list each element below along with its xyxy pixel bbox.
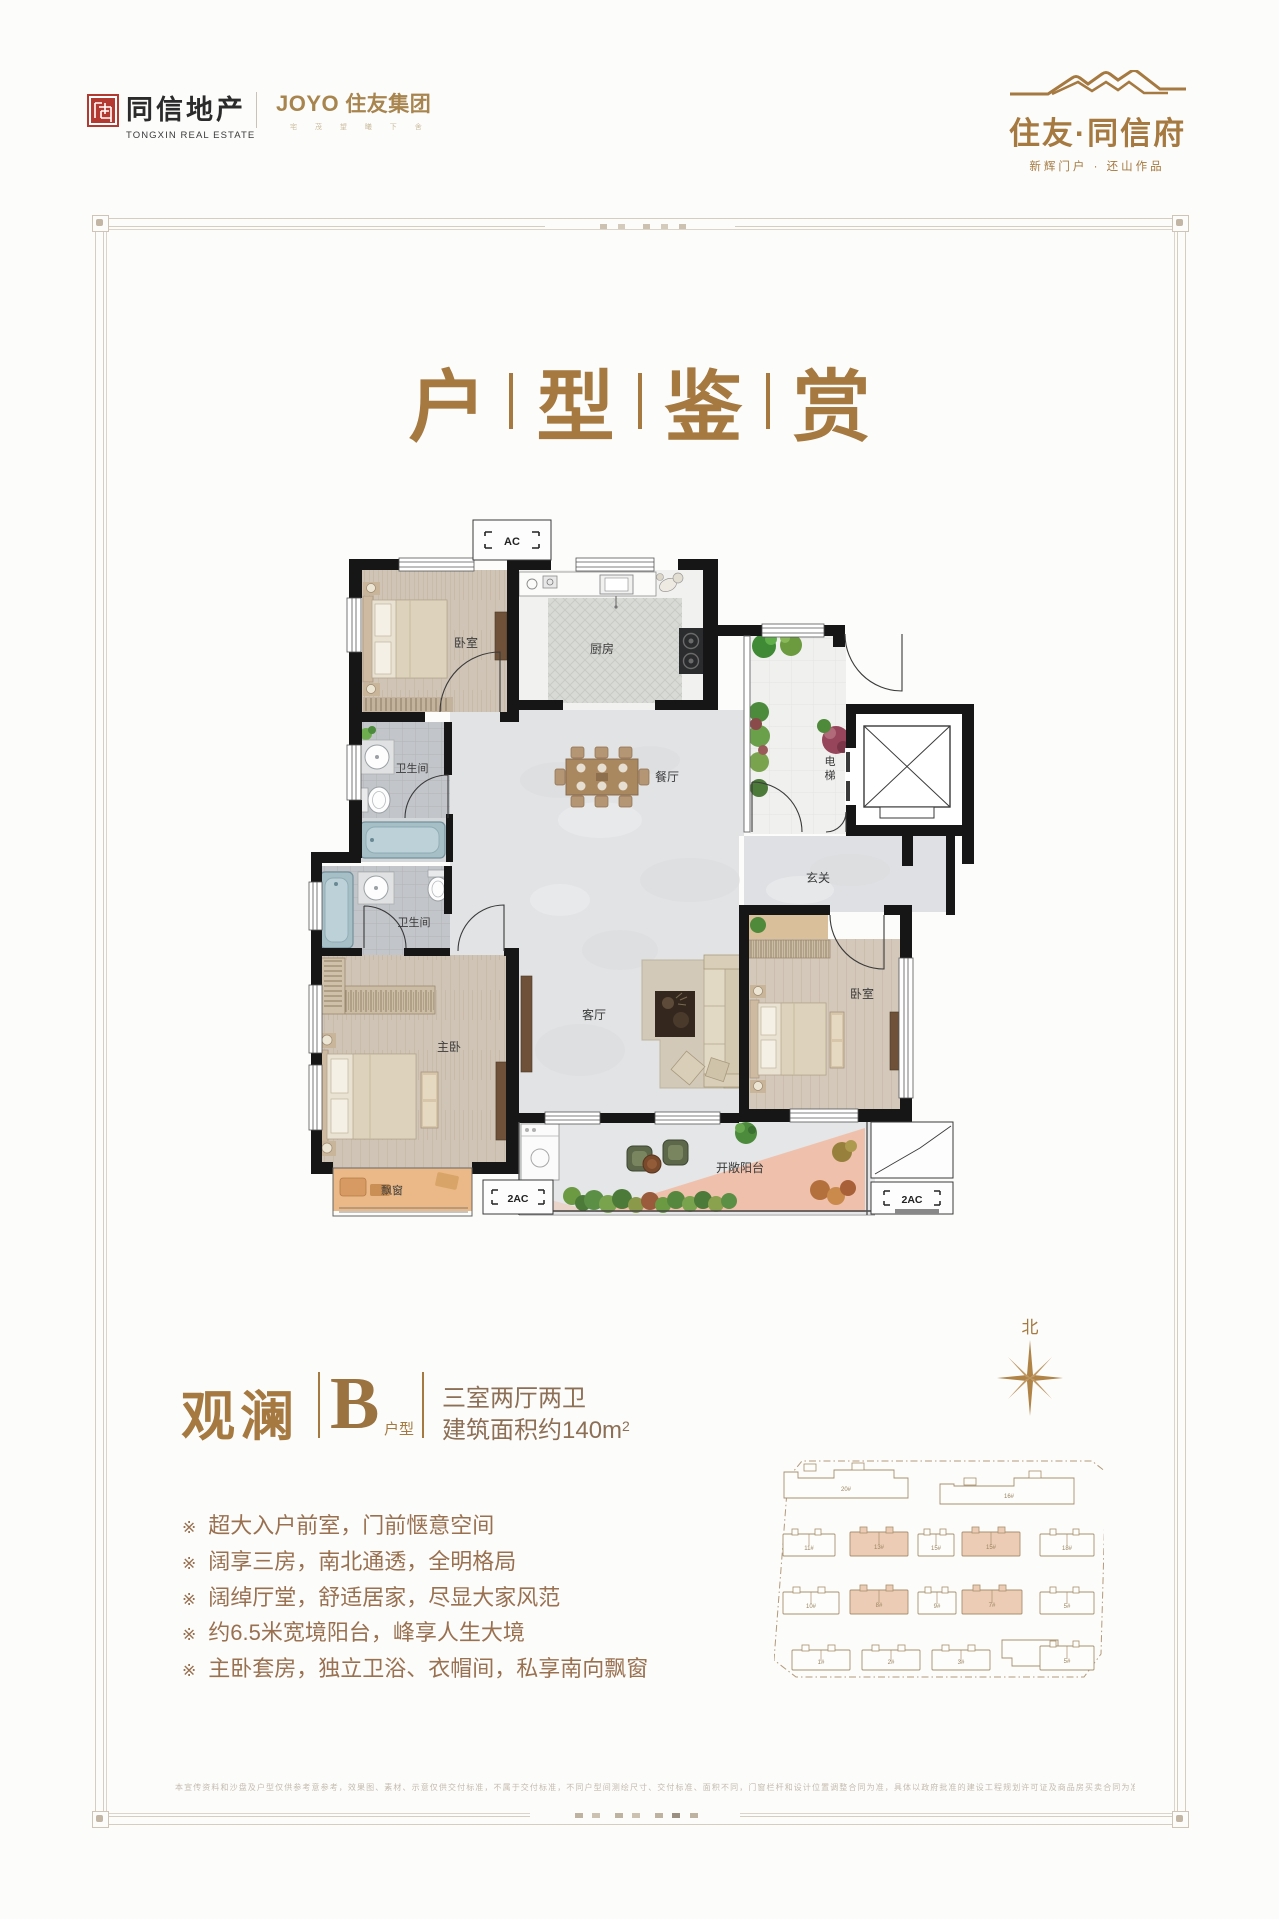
svg-text:16#: 16# (1004, 1494, 1015, 1500)
svg-text:餐厅: 餐厅 (655, 769, 679, 784)
svg-text:卧室: 卧室 (850, 986, 874, 1001)
svg-text:10#: 10# (806, 1604, 817, 1610)
svg-text:13#: 13# (874, 1545, 885, 1551)
svg-text:客厅: 客厅 (582, 1007, 606, 1022)
svg-text:18#: 18# (1062, 1546, 1073, 1552)
svg-text:卫生间: 卫生间 (396, 761, 429, 775)
svg-text:开敞阳台: 开敞阳台 (716, 1160, 764, 1175)
svg-text:飘窗: 飘窗 (381, 1183, 403, 1197)
svg-text:3#: 3# (958, 1660, 965, 1666)
svg-text:5#: 5# (1064, 1659, 1071, 1665)
svg-text:11#: 11# (804, 1546, 814, 1552)
svg-text:卫生间: 卫生间 (398, 915, 431, 929)
svg-text:电: 电 (825, 755, 836, 768)
svg-text:梯: 梯 (825, 769, 836, 782)
svg-text:玄关: 玄关 (806, 870, 830, 885)
svg-text:15#: 15# (931, 1546, 942, 1552)
svg-text:厨房: 厨房 (590, 641, 614, 656)
svg-text:2#: 2# (888, 1660, 895, 1666)
svg-text:AC: AC (504, 536, 520, 548)
svg-text:卧室: 卧室 (454, 635, 478, 650)
svg-text:主卧: 主卧 (437, 1040, 461, 1054)
svg-text:1#: 1# (818, 1660, 825, 1666)
svg-text:2AC: 2AC (507, 1193, 528, 1205)
svg-text:20#: 20# (841, 1487, 852, 1493)
svg-text:2AC: 2AC (901, 1194, 922, 1206)
svg-text:15#: 15# (986, 1545, 997, 1551)
svg-text:9#: 9# (934, 1604, 941, 1610)
svg-text:7#: 7# (989, 1603, 996, 1609)
svg-text:8#: 8# (876, 1603, 883, 1609)
svg-text:5#: 5# (1064, 1604, 1071, 1610)
svg-text:北: 北 (1022, 1318, 1039, 1337)
